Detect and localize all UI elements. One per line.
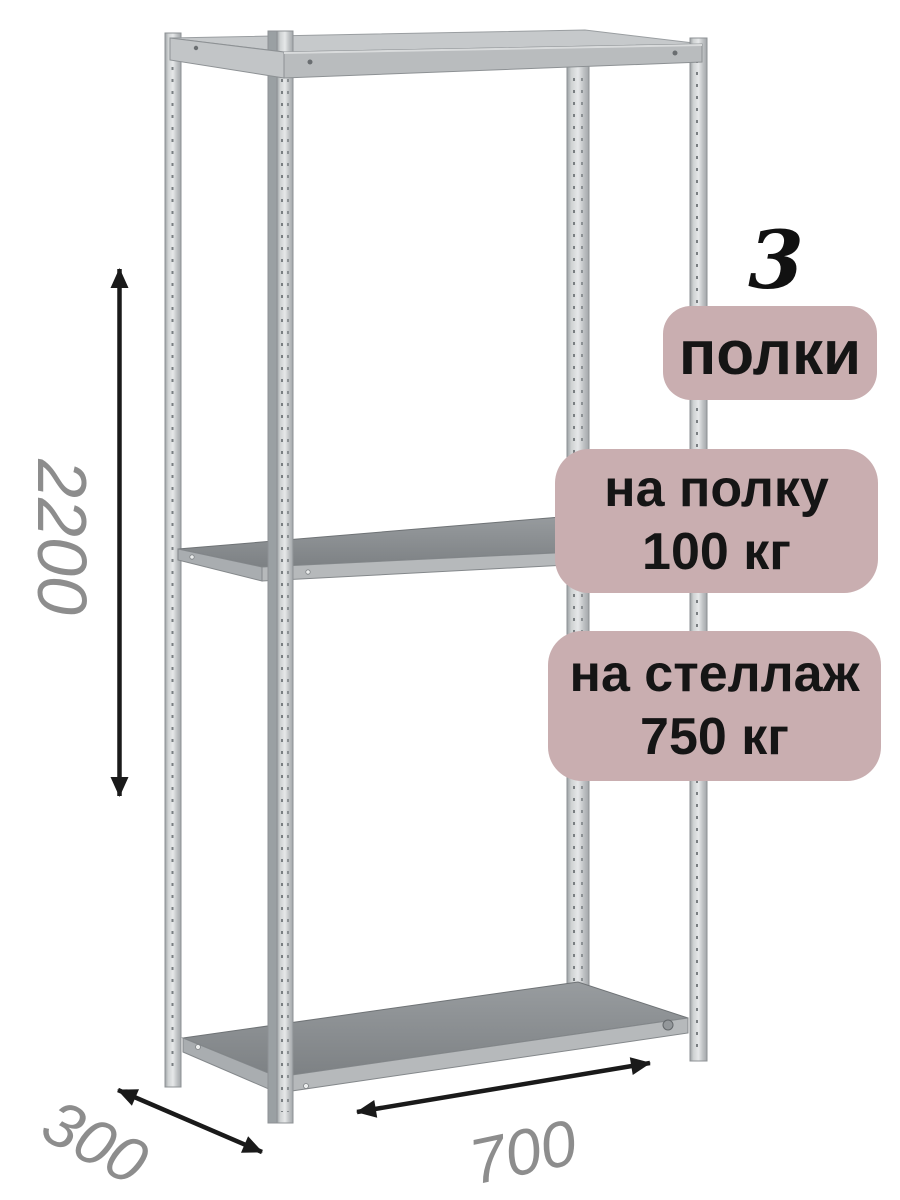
shelf-load-badge: на полку 100 кг	[555, 449, 878, 593]
shelf-load-line1: на полку	[604, 458, 829, 521]
rack-load-line2: 750 кг	[640, 706, 789, 769]
rack-shelf-bottom	[183, 982, 688, 1093]
rack-post-front-left	[268, 31, 293, 1123]
shelf-count-badge-label: полки	[679, 318, 861, 389]
rack-load-badge: на стеллаж 750 кг	[548, 631, 881, 781]
shelf-load-line2: 100 кг	[642, 521, 791, 584]
shelf-count-number: 3	[726, 210, 826, 310]
product-image: 2200 300 700 3 полки на полку 100 кг на …	[0, 0, 900, 1200]
shelf-count-badge: полки	[663, 306, 877, 400]
height-dimension-label: 2200	[22, 417, 102, 657]
rack-load-line1: на стеллаж	[570, 643, 860, 706]
shelving-rack-illustration	[0, 0, 900, 1200]
